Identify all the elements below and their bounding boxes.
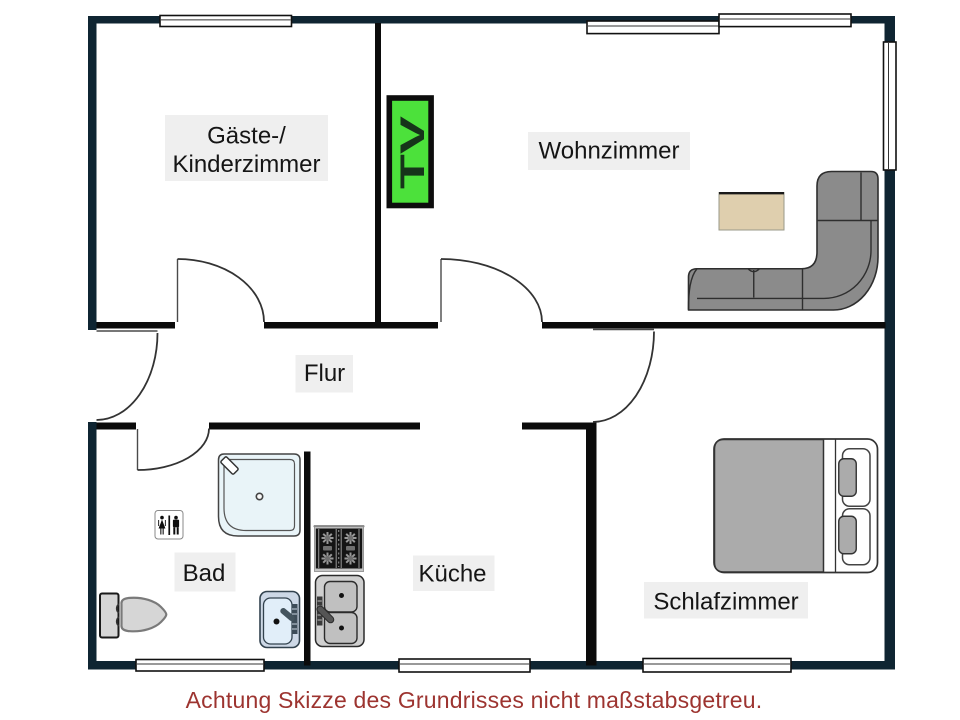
svg-text:Flur: Flur bbox=[304, 360, 345, 387]
svg-text:Bad: Bad bbox=[183, 560, 226, 587]
svg-text:Kinderzimmer: Kinderzimmer bbox=[172, 151, 320, 178]
svg-text:Küche: Küche bbox=[418, 561, 486, 588]
svg-text:Schlafzimmer: Schlafzimmer bbox=[653, 589, 798, 616]
svg-text:Achtung Skizze des Grundrisses: Achtung Skizze des Grundrisses nicht maß… bbox=[186, 687, 763, 713]
svg-text:TV: TV bbox=[393, 115, 431, 189]
svg-text:Gäste-/: Gäste-/ bbox=[207, 123, 286, 150]
svg-text:Wohnzimmer: Wohnzimmer bbox=[539, 138, 680, 165]
